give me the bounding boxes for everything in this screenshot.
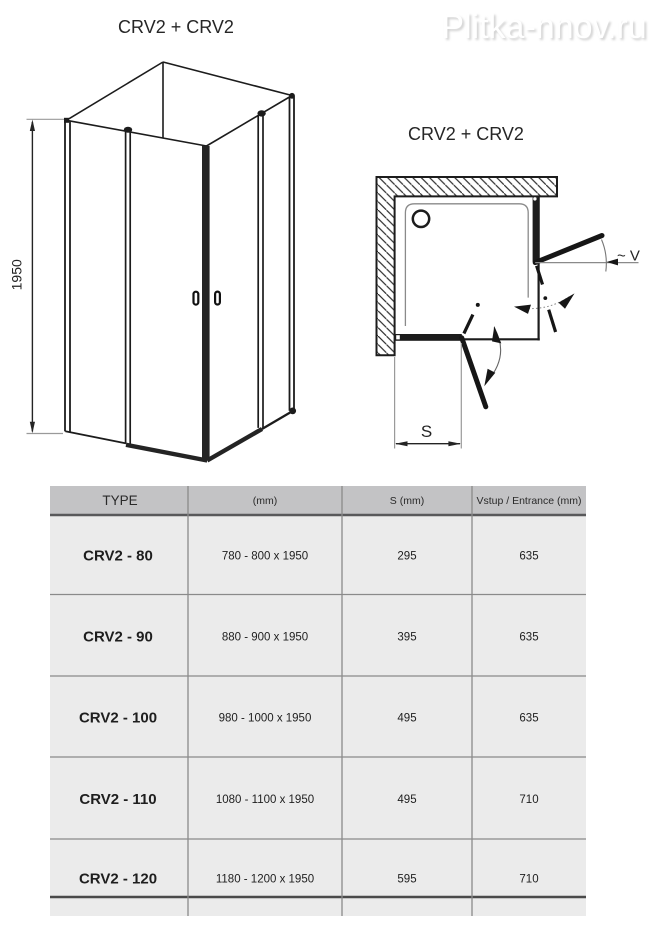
- svg-text:780 - 800 x 1950: 780 - 800 x 1950: [222, 551, 308, 563]
- svg-text:CRV2 - 110: CRV2 - 110: [79, 791, 156, 808]
- svg-text:CRV2 - 120: CRV2 - 120: [79, 871, 157, 888]
- svg-text:710: 710: [519, 874, 538, 886]
- svg-text:CRV2 + CRV2: CRV2 + CRV2: [408, 124, 524, 144]
- svg-text:710: 710: [519, 794, 538, 806]
- svg-text:495: 495: [397, 713, 416, 725]
- svg-text:CRV2 + CRV2: CRV2 + CRV2: [118, 17, 234, 37]
- svg-text:595: 595: [397, 874, 416, 886]
- svg-text:Vstup / Entrance (mm): Vstup / Entrance (mm): [476, 495, 581, 507]
- svg-text:295: 295: [397, 551, 416, 563]
- svg-text:CRV2 - 100: CRV2 - 100: [79, 710, 157, 727]
- svg-text:CRV2 - 90: CRV2 - 90: [83, 629, 153, 646]
- svg-text:S (mm): S (mm): [390, 495, 424, 507]
- svg-text:635: 635: [519, 551, 538, 563]
- svg-text:CRV2 - 80: CRV2 - 80: [83, 548, 153, 565]
- svg-text:980 - 1000 x 1950: 980 - 1000 x 1950: [219, 713, 312, 725]
- svg-text:495: 495: [397, 794, 416, 806]
- svg-text:(mm): (mm): [253, 495, 278, 507]
- svg-text:~ V: ~ V: [617, 248, 640, 265]
- svg-text:1950: 1950: [9, 259, 25, 290]
- svg-text:S: S: [421, 422, 432, 441]
- svg-text:1080 - 1100 x 1950: 1080 - 1100 x 1950: [216, 794, 314, 806]
- svg-text:635: 635: [519, 632, 538, 644]
- svg-text:Plitka-nnov.ru: Plitka-nnov.ru: [441, 8, 646, 46]
- svg-text:1180 - 1200 x 1950: 1180 - 1200 x 1950: [216, 874, 314, 886]
- svg-text:635: 635: [519, 713, 538, 725]
- svg-text:880 - 900 x 1950: 880 - 900 x 1950: [222, 632, 308, 644]
- svg-text:395: 395: [397, 632, 416, 644]
- svg-text:TYPE: TYPE: [102, 493, 137, 508]
